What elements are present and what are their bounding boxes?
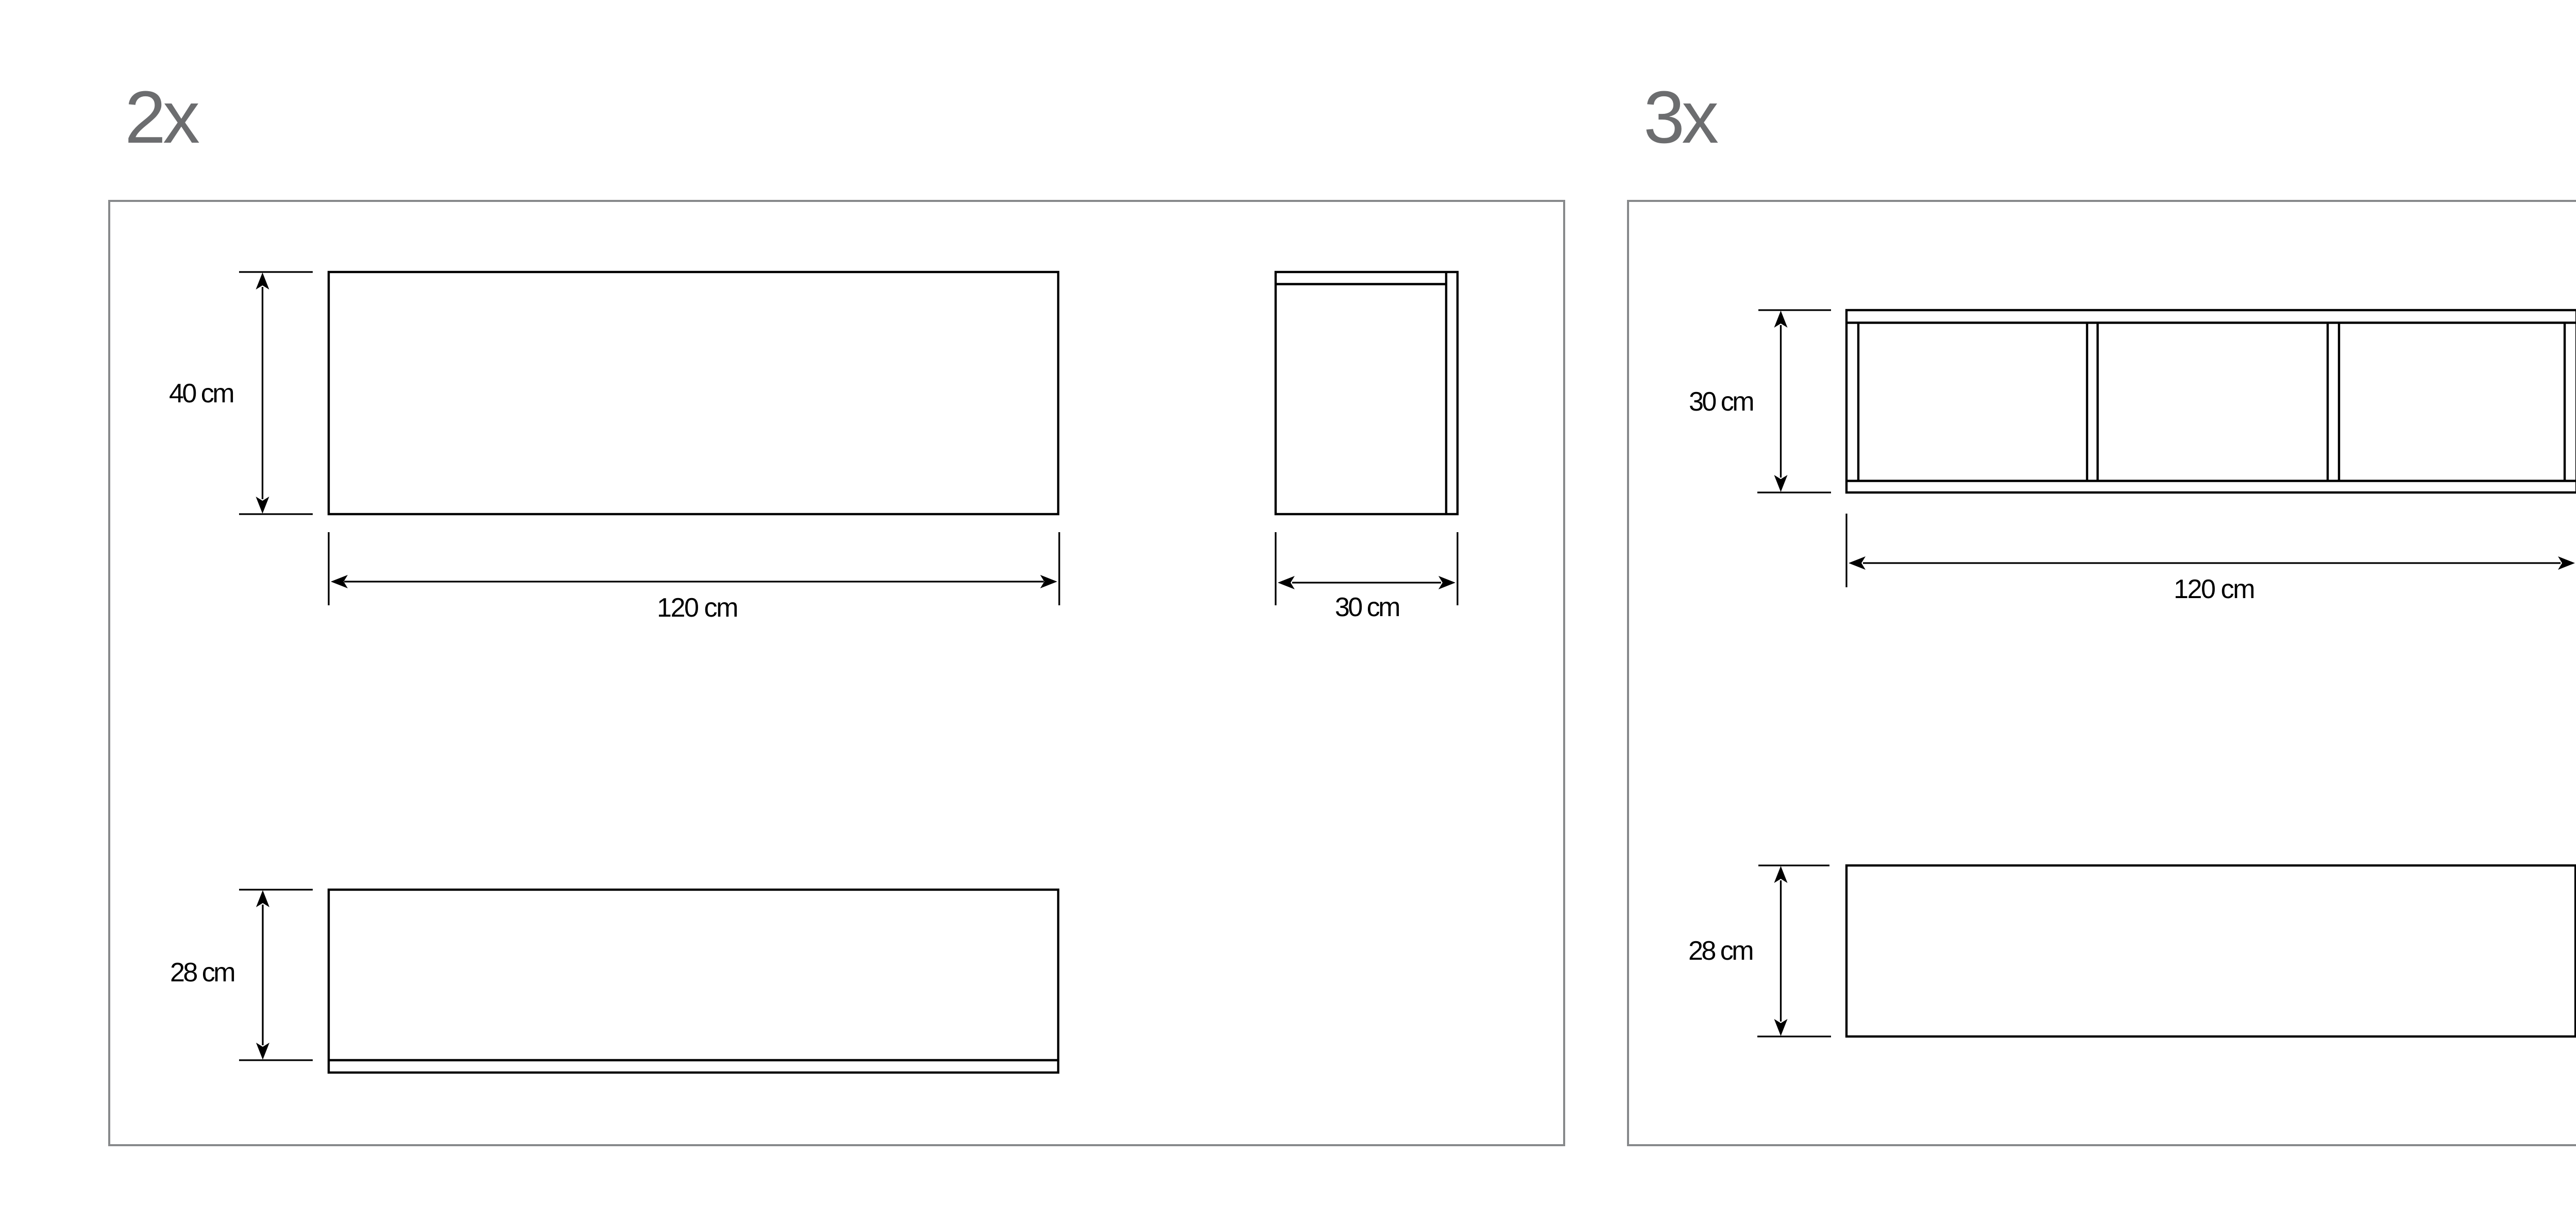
svg-text:2x: 2x [125, 76, 199, 159]
svg-text:28 cm: 28 cm [1688, 936, 1752, 966]
svg-text:30 cm: 30 cm [1689, 387, 1753, 417]
svg-text:28 cm: 28 cm [170, 958, 234, 988]
svg-text:40 cm: 40 cm [169, 379, 233, 409]
svg-text:120 cm: 120 cm [2174, 574, 2254, 604]
svg-text:30 cm: 30 cm [1335, 592, 1399, 622]
svg-text:120 cm: 120 cm [657, 593, 737, 623]
svg-text:3x: 3x [1643, 76, 1718, 159]
